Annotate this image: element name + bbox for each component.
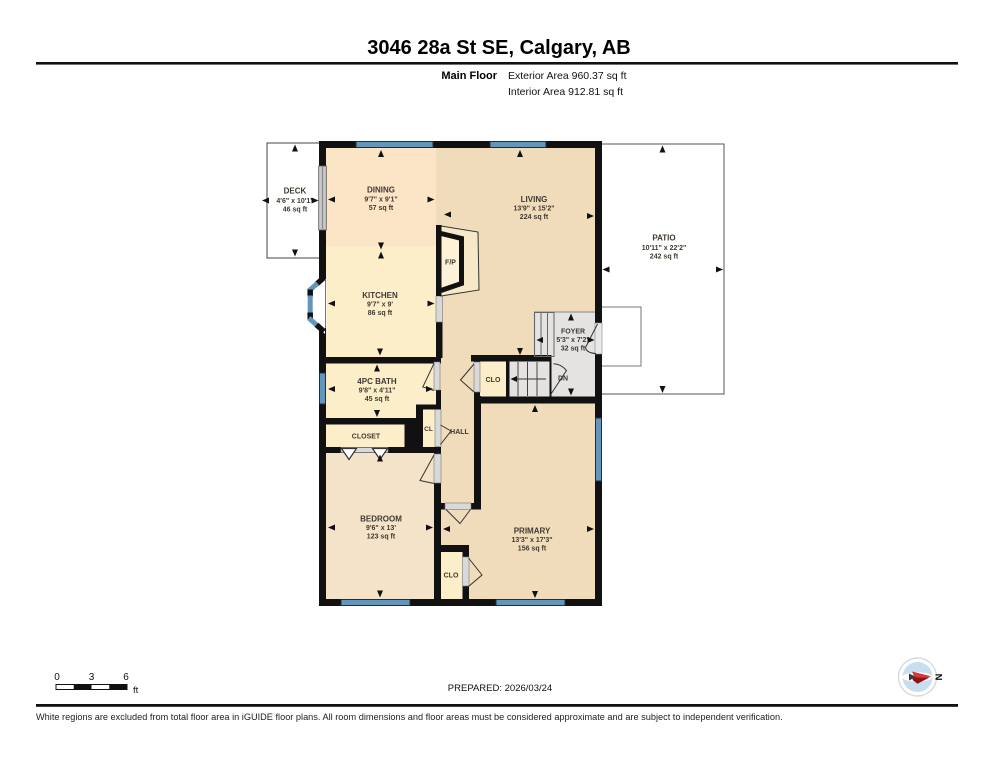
svg-text:KITCHEN: KITCHEN bbox=[362, 291, 398, 300]
svg-text:DECK: DECK bbox=[284, 187, 307, 196]
svg-text:224 sq ft: 224 sq ft bbox=[520, 214, 549, 221]
svg-text:Main Floor: Main Floor bbox=[441, 70, 497, 82]
svg-text:White regions are excluded fro: White regions are excluded from total fl… bbox=[36, 712, 783, 722]
svg-text:9'7" x 9': 9'7" x 9' bbox=[367, 302, 393, 309]
svg-text:PREPARED: 2026/03/24: PREPARED: 2026/03/24 bbox=[448, 683, 552, 694]
svg-text:45 sq ft: 45 sq ft bbox=[365, 396, 390, 403]
svg-text:9'7" x 9'1": 9'7" x 9'1" bbox=[364, 197, 397, 204]
svg-text:57 sq ft: 57 sq ft bbox=[369, 205, 394, 212]
svg-text:0: 0 bbox=[54, 672, 60, 683]
svg-text:DINING: DINING bbox=[367, 186, 395, 195]
svg-text:32 sq ft: 32 sq ft bbox=[561, 346, 586, 353]
svg-text:4PC BATH: 4PC BATH bbox=[357, 377, 397, 386]
svg-text:LIVING: LIVING bbox=[521, 195, 548, 204]
svg-text:156 sq ft: 156 sq ft bbox=[518, 546, 547, 553]
svg-text:9'6" x 13': 9'6" x 13' bbox=[366, 525, 396, 532]
svg-text:3: 3 bbox=[89, 672, 95, 683]
svg-text:9'8" x 4'11": 9'8" x 4'11" bbox=[359, 388, 396, 395]
svg-text:CL: CL bbox=[424, 426, 433, 433]
svg-text:PRIMARY: PRIMARY bbox=[514, 527, 551, 536]
svg-text:6: 6 bbox=[123, 672, 129, 683]
svg-text:3046 28a St SE, Calgary, AB: 3046 28a St SE, Calgary, AB bbox=[367, 37, 630, 59]
svg-text:5'3" x 7'2": 5'3" x 7'2" bbox=[556, 337, 589, 344]
svg-text:13'3" x 17'3": 13'3" x 17'3" bbox=[511, 537, 552, 544]
svg-text:10'11" x 22'2": 10'11" x 22'2" bbox=[642, 245, 687, 252]
svg-text:F/P: F/P bbox=[445, 260, 456, 267]
svg-text:DN: DN bbox=[558, 376, 568, 383]
svg-text:ft: ft bbox=[133, 685, 139, 696]
svg-text:CLO: CLO bbox=[486, 377, 501, 384]
svg-text:N: N bbox=[933, 674, 944, 681]
svg-text:FOYER: FOYER bbox=[561, 329, 585, 336]
svg-text:86 sq ft: 86 sq ft bbox=[368, 310, 393, 317]
svg-text:PATIO: PATIO bbox=[652, 234, 675, 243]
svg-text:242 sq ft: 242 sq ft bbox=[650, 254, 679, 261]
svg-text:13'9" x 15'2": 13'9" x 15'2" bbox=[513, 206, 554, 213]
svg-text:4'6" x 10'1": 4'6" x 10'1" bbox=[276, 198, 313, 205]
svg-text:Exterior Area 960.37 sq ft: Exterior Area 960.37 sq ft bbox=[508, 70, 627, 82]
svg-text:CLOSET: CLOSET bbox=[352, 434, 381, 441]
svg-text:BEDROOM: BEDROOM bbox=[360, 515, 402, 524]
svg-text:123 sq ft: 123 sq ft bbox=[367, 534, 396, 541]
svg-text:Interior Area 912.81 sq ft: Interior Area 912.81 sq ft bbox=[508, 86, 623, 98]
svg-text:HALL: HALL bbox=[450, 429, 469, 436]
svg-text:CLO: CLO bbox=[444, 573, 459, 580]
svg-text:46 sq ft: 46 sq ft bbox=[283, 207, 308, 214]
